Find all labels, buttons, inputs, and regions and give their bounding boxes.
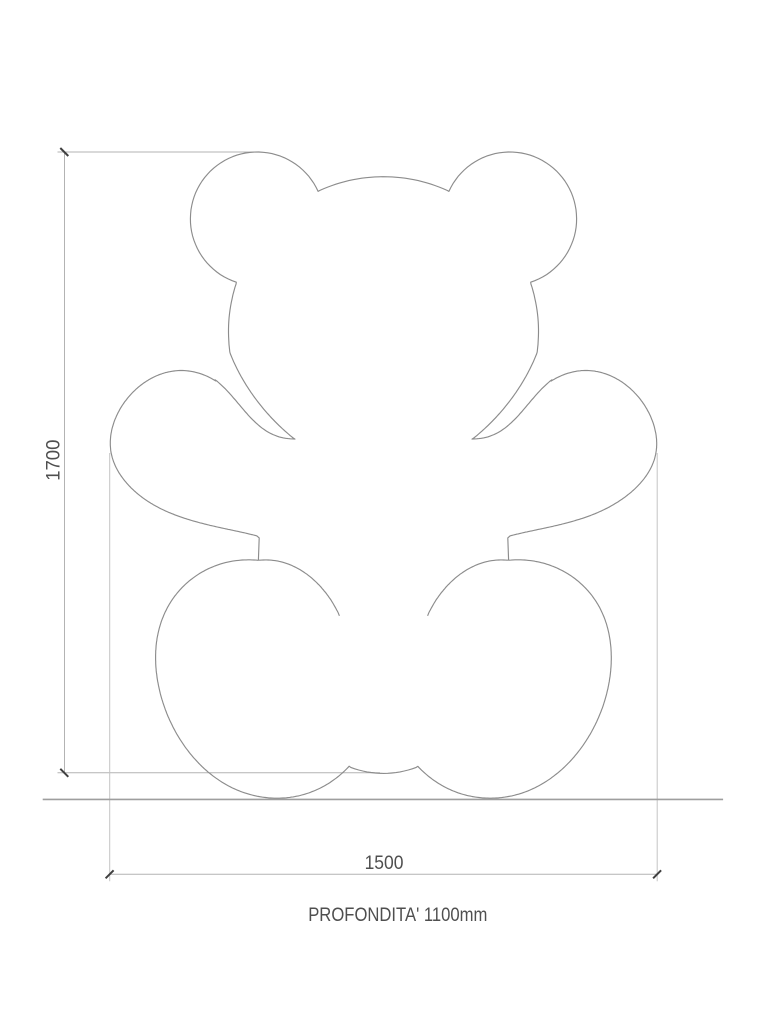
svg-text:1700: 1700 — [43, 440, 65, 481]
svg-text:PROFONDITA' 1100mm: PROFONDITA' 1100mm — [308, 904, 487, 925]
svg-text:1500: 1500 — [365, 852, 404, 874]
